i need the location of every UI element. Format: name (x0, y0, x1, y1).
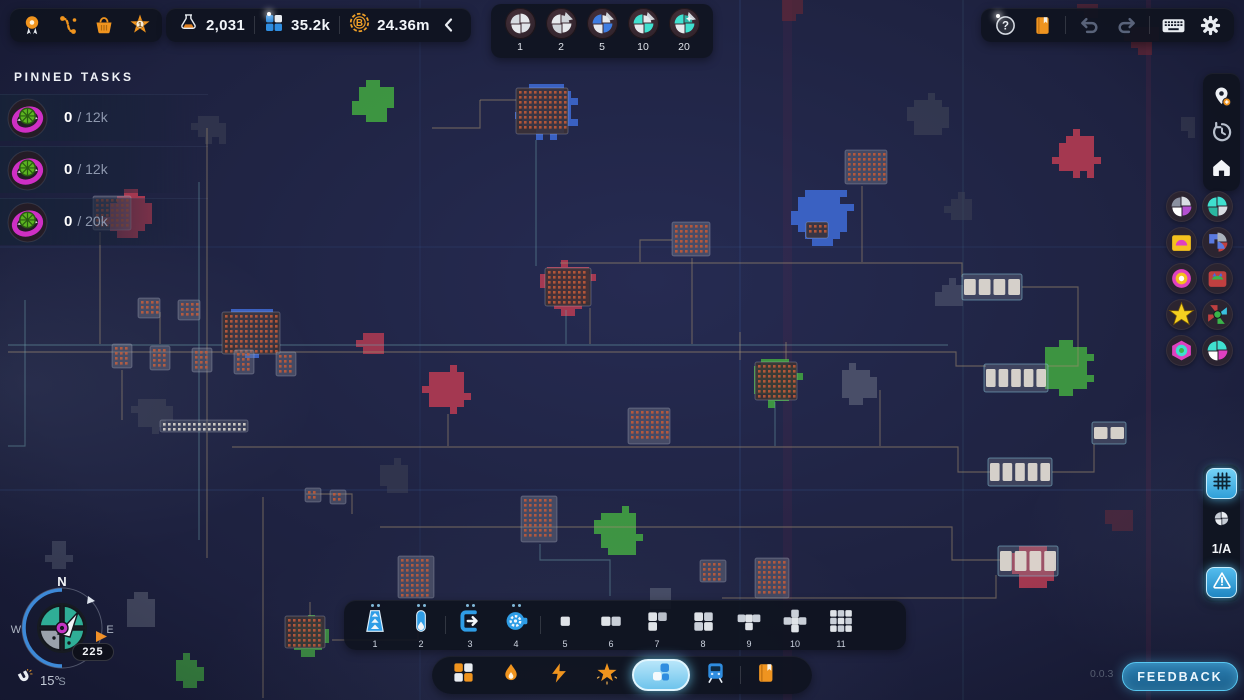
sparkle-dot (267, 12, 271, 16)
shop-button[interactable] (90, 11, 118, 39)
grid-icon (1211, 470, 1233, 497)
cardinal-n: N (57, 574, 66, 589)
shape-badge-5[interactable] (1166, 263, 1197, 294)
shape-badge-6[interactable] (1202, 263, 1233, 294)
star-badge-icon: 1 (128, 13, 152, 37)
shape-badge-9[interactable] (1166, 335, 1197, 366)
basket-icon (92, 13, 116, 37)
divider (339, 16, 340, 34)
tool-extractor[interactable]: 3 (448, 602, 492, 648)
tool-hotkey: 3 (467, 639, 472, 649)
shape-badge-8[interactable] (1202, 299, 1233, 330)
history-button[interactable] (1208, 118, 1236, 146)
task-progress: 0/ 12k (64, 109, 108, 127)
collapse-bar-button[interactable] (439, 11, 459, 39)
currency-resource: B 24.36m (349, 12, 430, 38)
alerts-button[interactable] (1206, 567, 1237, 598)
platform-cross-icon (782, 608, 808, 639)
compass-heading: 225 (72, 643, 114, 661)
book-icon (1032, 15, 1053, 36)
shape-slot-5[interactable]: 20 (665, 8, 703, 53)
tool-hotkey: 8 (700, 639, 705, 649)
droplet-icon (500, 662, 522, 689)
variant-dots (371, 604, 380, 607)
home-button[interactable] (1208, 153, 1236, 181)
tool-hotkey: 2 (418, 639, 423, 649)
redo-icon (1115, 14, 1138, 37)
operator-shape-badges (1166, 191, 1233, 366)
variant-dots (512, 604, 521, 607)
shapes-value: 35.2k (291, 17, 330, 34)
divider (540, 616, 541, 634)
shape-count-label: 2 (558, 41, 564, 53)
platform-t-icon (736, 608, 762, 639)
mini-shape-icon (1213, 510, 1230, 532)
lightning-icon (548, 662, 570, 689)
undo-button[interactable] (1075, 11, 1103, 39)
tilt-value: 15° (40, 673, 60, 688)
variant-dots (417, 604, 426, 607)
shape-count-label: 10 (637, 41, 649, 53)
medal-icon (20, 13, 44, 37)
shapes-currency-icon (264, 13, 284, 38)
warning-icon (1211, 569, 1233, 596)
shapes-resource: 35.2k (264, 13, 330, 38)
view-controls (1203, 73, 1240, 191)
knowledge-button[interactable] (1028, 11, 1056, 39)
category-platforms[interactable] (632, 659, 690, 691)
platform-1x1-icon (552, 608, 578, 639)
task-shape-icon (7, 202, 48, 243)
feedback-button[interactable]: FEEDBACK (1122, 662, 1238, 691)
shape-count-label: 1 (517, 41, 523, 53)
undo-icon (1078, 14, 1101, 37)
rank-button[interactable]: 1 (126, 11, 154, 39)
build-toolbar: 1 2 3 4 5 (344, 600, 906, 650)
shape-badge-2[interactable] (1202, 191, 1233, 222)
platform-corner-icon (644, 608, 670, 639)
divider (445, 616, 446, 634)
category-effects[interactable] (584, 656, 630, 694)
svg-text:?: ? (1001, 20, 1008, 32)
tool-platform-cross[interactable]: 10 (773, 602, 817, 648)
category-wires[interactable] (536, 656, 582, 694)
task-current: 0 (64, 109, 72, 126)
pinned-task-row[interactable]: 0/ 12k (0, 94, 208, 141)
settings-button[interactable] (1196, 11, 1224, 39)
tool-platform-3x3[interactable]: 11 (819, 602, 863, 648)
task-target: / 12k (77, 109, 107, 125)
tool-platform-1x1[interactable]: 5 (543, 602, 587, 648)
exit-arrow-icon (457, 608, 483, 639)
home-icon (1209, 155, 1234, 180)
tool-hotkey: 4 (513, 639, 518, 649)
tool-hotkey: 9 (746, 639, 751, 649)
task-progress: 0/ 12k (64, 161, 108, 179)
task-target: / 12k (77, 161, 107, 177)
tool-rotator[interactable]: 4 (494, 602, 538, 648)
tool-platform-corner[interactable]: 7 (635, 602, 679, 648)
grid-toggle-button[interactable] (1206, 468, 1237, 499)
platform-2x2-icon (690, 608, 716, 639)
category-bar (432, 656, 812, 694)
star-sparkle-icon (595, 661, 619, 690)
pinned-tasks-panel: PINNED TASKS 0/ 12k 0/ 12k (0, 70, 230, 250)
system-bar: ? (981, 8, 1234, 42)
shortcuts-button[interactable] (1159, 11, 1187, 39)
shape-slot-3[interactable]: 5 (583, 8, 621, 53)
cardinal-w: W (11, 624, 22, 636)
milestones-button[interactable] (54, 11, 82, 39)
shape-badge-4[interactable] (1202, 227, 1233, 258)
shape-slot-4[interactable]: 10 (624, 8, 662, 53)
history-icon (1210, 120, 1234, 144)
pinned-tasks-title: PINNED TASKS (14, 70, 230, 84)
resource-bar: 2,031 35.2k B 24.36m (166, 8, 471, 42)
flask-icon (178, 12, 199, 38)
achievements-button[interactable] (18, 11, 46, 39)
shape-badge-1[interactable] (1166, 191, 1197, 222)
divider (740, 666, 741, 684)
tool-hotkey: 5 (562, 639, 567, 649)
shape-slot-1[interactable]: 1 (501, 8, 539, 53)
platform-1x2-icon (598, 608, 624, 639)
divider (1149, 16, 1150, 34)
shape-badge-3[interactable] (1166, 227, 1197, 258)
milestone-shape-selector: 1 2 5 10 20 (491, 4, 713, 58)
divider (254, 16, 255, 34)
gear-ring-icon (503, 608, 529, 639)
shape-count-label: 5 (599, 41, 605, 53)
version-label: 0.0.3 (1090, 668, 1113, 680)
task-target: / 20k (77, 213, 107, 229)
pinned-task-row[interactable]: 0/ 20k (0, 198, 208, 245)
shape-slot-2[interactable]: 2 (542, 8, 580, 53)
shape-badge-10[interactable] (1202, 335, 1233, 366)
tool-hotkey: 6 (608, 639, 613, 649)
task-shape-icon (7, 98, 48, 139)
tool-pipe[interactable]: 2 (399, 602, 443, 648)
category-fluids[interactable] (488, 656, 534, 694)
layer-indicator: 1/A (1212, 542, 1231, 556)
progress-icon-group: 1 (10, 8, 162, 42)
variant-dots (466, 604, 475, 607)
tool-platform-2x2[interactable]: 8 (681, 602, 725, 648)
tilt-indicator: 15° (16, 669, 60, 691)
train-icon (704, 661, 727, 689)
pin-plus-icon (1210, 85, 1234, 109)
shape-badge-7[interactable] (1166, 299, 1197, 330)
keyboard-icon (1161, 13, 1186, 38)
rank-level: 1 (138, 22, 142, 29)
research-resource: 2,031 (178, 12, 245, 38)
waypoint-button[interactable] (1208, 83, 1236, 111)
task-current: 0 (64, 213, 72, 230)
sparkle-dot (996, 14, 1000, 18)
platform-3x3-icon (828, 608, 854, 639)
route-icon (56, 13, 80, 37)
tool-hotkey: 1 (372, 639, 377, 649)
platforms-category-icon (649, 661, 673, 690)
divider (1065, 16, 1066, 34)
category-guide[interactable] (743, 656, 789, 694)
shapes-category-icon (452, 661, 475, 689)
tool-belt[interactable]: 1 (353, 602, 397, 648)
gear-icon (1199, 14, 1222, 37)
belt-icon (362, 608, 388, 639)
shape-count-label: 20 (678, 41, 690, 53)
task-shape-icon (7, 150, 48, 191)
book-icon (755, 662, 777, 689)
coin-icon: B (349, 12, 370, 38)
pinned-task-row[interactable]: 0/ 12k (0, 146, 208, 193)
category-shapes[interactable] (440, 656, 486, 694)
tool-hotkey: 7 (654, 639, 659, 649)
compass-widget[interactable]: N W E S 225 15° (8, 573, 120, 700)
layer-controls: 1/A (1203, 464, 1240, 602)
task-progress: 0/ 20k (64, 213, 108, 231)
redo-button[interactable] (1112, 11, 1140, 39)
chevron-left-icon (442, 17, 456, 33)
tool-platform-t[interactable]: 9 (727, 602, 771, 648)
svg-text:B: B (356, 18, 363, 29)
magnet-icon (16, 669, 33, 691)
category-trains[interactable] (692, 656, 738, 694)
tool-hotkey: 11 (836, 639, 845, 649)
task-current: 0 (64, 161, 72, 178)
tool-hotkey: 10 (790, 639, 800, 649)
cardinal-e: E (106, 624, 113, 636)
research-value: 2,031 (206, 17, 245, 34)
pipe-icon (408, 608, 434, 639)
tool-platform-1x2[interactable]: 6 (589, 602, 633, 648)
currency-value: 24.36m (377, 17, 430, 34)
